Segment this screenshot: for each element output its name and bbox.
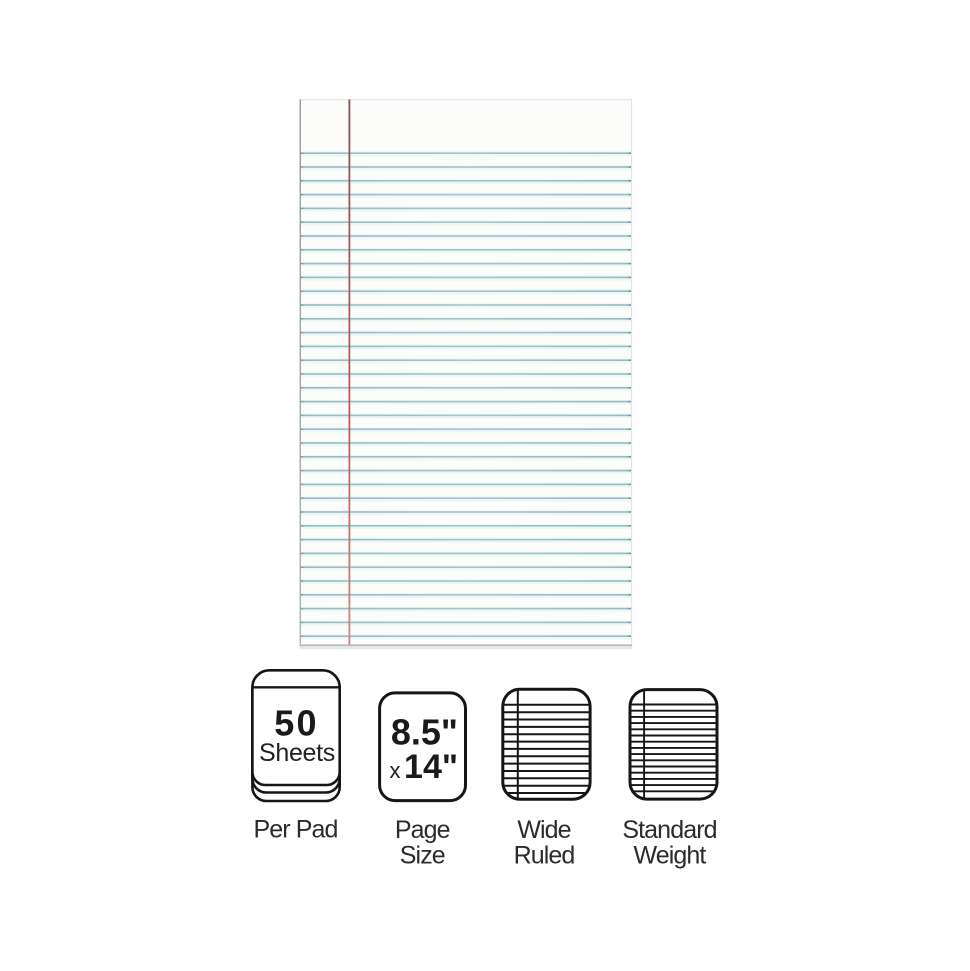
svg-text:Wide: Wide bbox=[517, 816, 570, 844]
svg-text:Page: Page bbox=[395, 816, 450, 844]
svg-text:Per Pad: Per Pad bbox=[253, 816, 337, 844]
svg-text:Weight: Weight bbox=[634, 842, 707, 870]
svg-text:8.5": 8.5" bbox=[391, 712, 458, 753]
svg-text:Ruled: Ruled bbox=[514, 842, 575, 870]
svg-text:Standard: Standard bbox=[622, 816, 716, 844]
svg-text:Sheets: Sheets bbox=[259, 739, 335, 767]
svg-text:Size: Size bbox=[400, 842, 445, 870]
svg-text:50: 50 bbox=[274, 703, 318, 744]
